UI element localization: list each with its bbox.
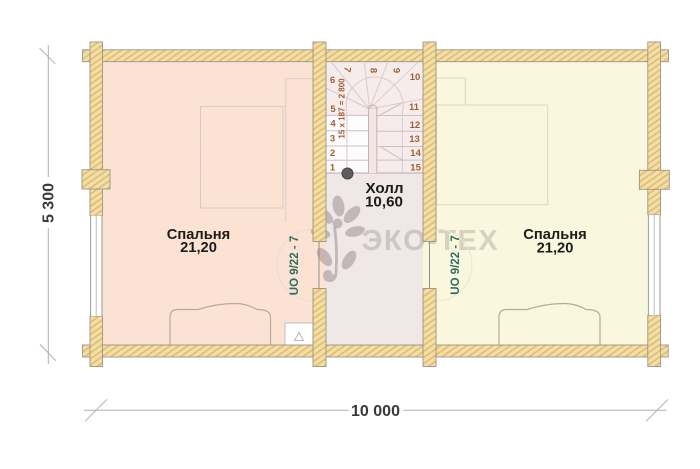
svg-text:UO 9/22 - 7: UO 9/22 - 7 [289, 236, 301, 295]
svg-text:10: 10 [410, 72, 421, 83]
svg-text:6: 6 [330, 75, 335, 86]
svg-text:21,20: 21,20 [180, 240, 217, 256]
svg-text:2: 2 [330, 148, 335, 159]
svg-text:21,20: 21,20 [537, 240, 574, 256]
svg-text:12: 12 [410, 120, 421, 131]
svg-text:13: 13 [409, 134, 420, 145]
svg-text:1: 1 [330, 162, 336, 173]
svg-text:5: 5 [330, 104, 336, 115]
svg-text:UO 9/22 - 7: UO 9/22 - 7 [450, 235, 462, 294]
svg-text:3: 3 [330, 134, 335, 145]
svg-text:15: 15 [410, 163, 421, 174]
svg-text:4: 4 [330, 118, 336, 129]
svg-text:8: 8 [367, 68, 378, 73]
svg-text:9: 9 [390, 68, 401, 73]
svg-text:15 x 187 = 2 800: 15 x 187 = 2 800 [337, 78, 346, 139]
svg-text:10,60: 10,60 [365, 194, 403, 211]
svg-text:5 300: 5 300 [40, 183, 57, 223]
svg-text:10 000: 10 000 [351, 403, 400, 420]
svg-text:11: 11 [409, 102, 420, 113]
svg-text:14: 14 [410, 148, 421, 159]
